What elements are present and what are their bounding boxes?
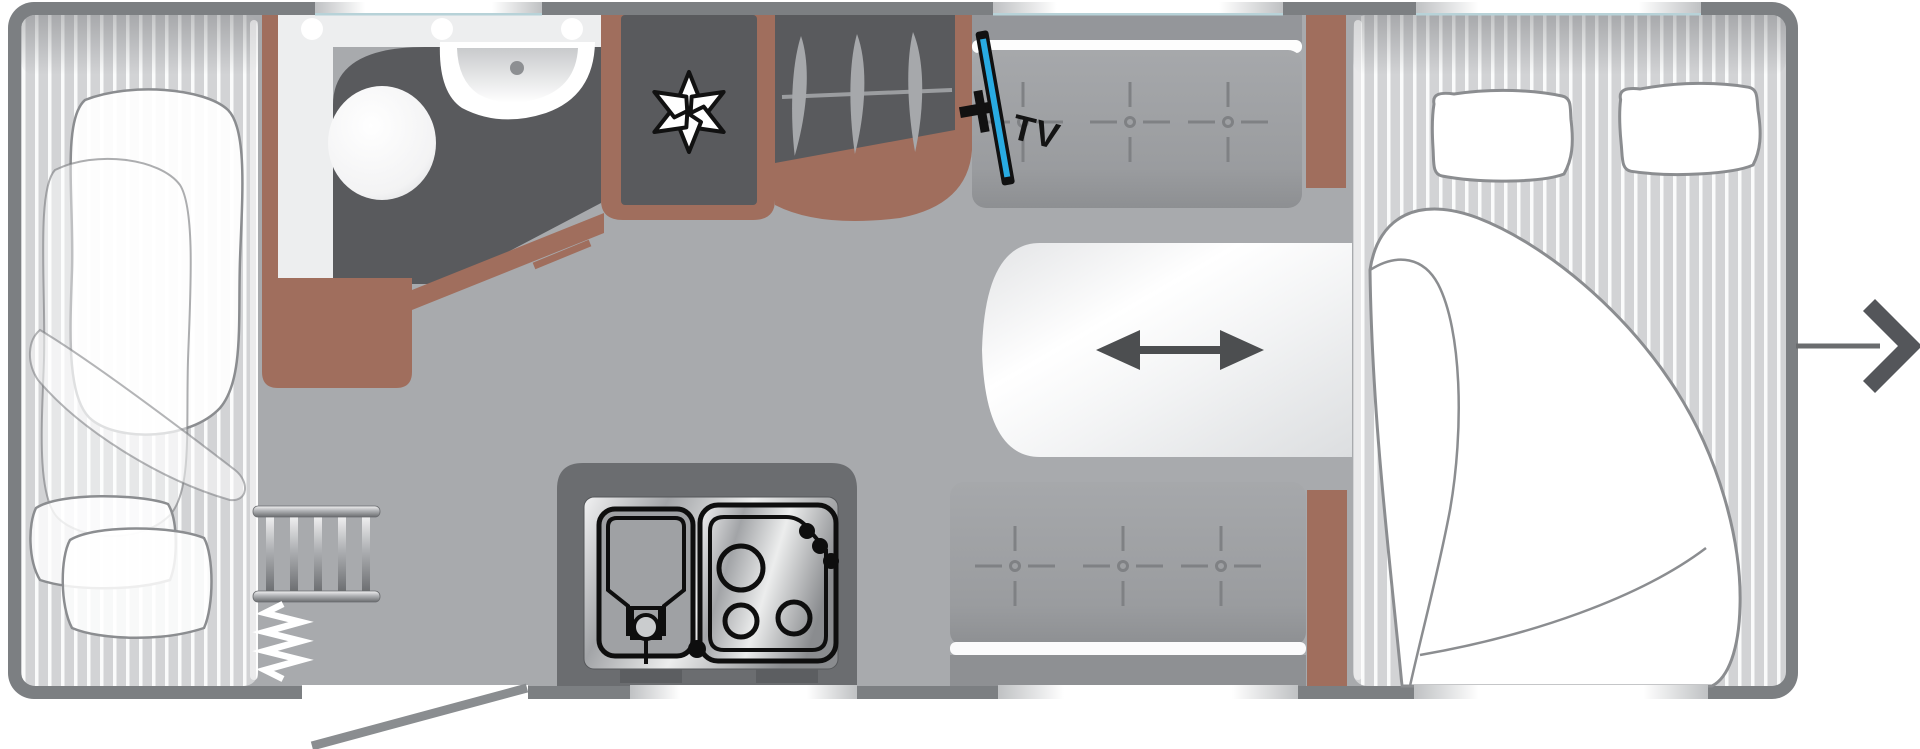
window — [998, 685, 1298, 699]
kitchen-sink — [599, 509, 693, 664]
wardrobe — [775, 15, 972, 221]
bed-head-panel — [1306, 15, 1346, 188]
faucet-icon — [510, 61, 524, 75]
spotlight-icon — [301, 18, 323, 40]
bathroom-wall-bottom — [262, 278, 412, 388]
refrigerator — [601, 15, 775, 220]
drain-dot — [688, 640, 706, 658]
knob-icon — [799, 523, 815, 539]
bed-side-panel — [1307, 490, 1347, 686]
entry-door — [302, 685, 528, 746]
spotlight-icon — [561, 18, 583, 40]
rear-bed-pillow — [1618, 81, 1761, 177]
rear-bed-pillow — [1432, 90, 1572, 181]
bathroom-wall-left — [262, 15, 278, 280]
knob-icon — [823, 553, 839, 569]
rear-bench-seat — [950, 482, 1306, 686]
knob-icon — [812, 538, 828, 554]
window — [630, 685, 857, 699]
front-bed-pillow — [63, 529, 212, 638]
window — [1414, 685, 1708, 699]
rear-bed — [1353, 15, 1786, 686]
kitchen — [557, 463, 857, 686]
spotlight-icon — [431, 18, 453, 40]
sliding-table — [982, 243, 1352, 457]
right-arrow-icon — [1796, 305, 1910, 387]
caravan-floor-plan: TV — [0, 0, 1920, 749]
toilet — [328, 86, 436, 200]
front-bed — [21, 15, 258, 686]
stove-hob — [700, 505, 839, 661]
